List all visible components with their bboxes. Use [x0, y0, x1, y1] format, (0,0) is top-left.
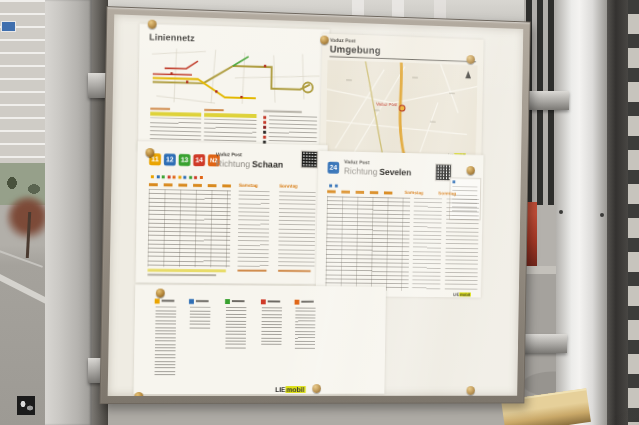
- sevelen-timetable-panel: 24 Vaduz Post RichtungSevelen Samstag So…: [316, 151, 484, 298]
- logo-lie: LIE: [275, 386, 286, 393]
- info-card-chip: [453, 180, 456, 183]
- day-header-sonntag: Sonntag: [279, 183, 297, 188]
- brass-fastener: [466, 386, 474, 395]
- bus-stop-info-board-photo: Liniennetz: [0, 0, 639, 425]
- qr-code: [301, 150, 318, 168]
- area-map: Vaduz Post: [326, 60, 478, 157]
- richtung-label: Richtung: [216, 159, 251, 170]
- building-far-right: [628, 0, 639, 425]
- brass-fastener: [466, 55, 474, 64]
- brass-fastener: [466, 166, 474, 175]
- timetable-grid-sonntag: [445, 199, 479, 292]
- line-square-11: [155, 299, 160, 304]
- schaan-timetable-panel: 11121314N2 Vaduz Post RichtungSchaan Sam…: [136, 141, 328, 284]
- richtung-label: Richtung: [344, 166, 378, 177]
- line-square-13: [225, 299, 230, 304]
- notice-board: Liniennetz: [108, 14, 524, 396]
- route-badge-24: 24: [328, 162, 340, 174]
- column-title-bar: [232, 300, 245, 302]
- liniennetz-panel: Liniennetz: [138, 24, 330, 155]
- brass-fastener: [320, 35, 329, 44]
- legend-icon: [263, 131, 266, 134]
- stop-list-column-13: [224, 299, 248, 350]
- line-chip: [167, 176, 170, 179]
- table-caption-bar: [150, 108, 170, 110]
- stop-names: [225, 307, 246, 351]
- line-chip: [199, 176, 202, 179]
- line-chip: [334, 184, 337, 187]
- blue-sign: [1, 21, 16, 32]
- map-marker-label: Vaduz Post: [376, 102, 398, 108]
- line-chip: [173, 176, 176, 179]
- line-chip: [183, 176, 186, 179]
- stop-names: [155, 307, 177, 377]
- timetable-header-yellow: [150, 112, 201, 117]
- brass-fastener: [148, 20, 157, 29]
- logo-mobil: mobil: [285, 386, 305, 393]
- mounting-post-left: [45, 0, 92, 425]
- day-header-samstag: Samstag: [405, 190, 424, 195]
- line-chip: [194, 176, 197, 179]
- shelter-frame-seal: [607, 0, 629, 425]
- line-chip: [162, 175, 165, 178]
- timetable-grid-samstag: [238, 191, 270, 268]
- timetable-header-yellow: [204, 113, 256, 118]
- display-case: Liniennetz: [100, 6, 531, 404]
- schaan-direction: RichtungSchaan: [216, 159, 283, 170]
- route-badge-14: 14: [193, 154, 205, 166]
- stop-list-column-11: [154, 299, 179, 377]
- column-title-bar: [162, 300, 175, 302]
- stop-list-column-14: [260, 299, 284, 346]
- day-header-sonntag: Sonntag: [438, 191, 456, 196]
- legend-icon: [263, 121, 266, 124]
- line-square-12: [189, 299, 194, 304]
- timetable-grid-samstag: [412, 198, 442, 292]
- table-caption-bar: [204, 109, 223, 111]
- liniennetz-title: Liniennetz: [149, 32, 195, 43]
- post-bolt: [559, 210, 563, 214]
- network-map: [146, 46, 321, 108]
- destination-schaan: Schaan: [252, 159, 283, 169]
- stop-names: [261, 307, 282, 346]
- line-chip: [151, 175, 154, 178]
- stop-list-panel: LIEmobil: [134, 285, 386, 395]
- line-chip: [156, 175, 159, 178]
- route-badge-13: 13: [179, 154, 191, 166]
- route-badges-row: 11121314N2: [149, 153, 223, 172]
- logo-mobil: mobil: [459, 292, 471, 296]
- footnote-line: [148, 274, 217, 276]
- line-chip: [329, 184, 332, 187]
- line-square-n2: [295, 300, 300, 305]
- timetable-grid-weekday: [148, 189, 231, 267]
- sevelen-kicker: Vaduz Post: [344, 159, 370, 165]
- line-chip: [189, 176, 192, 179]
- footnote-highlight: [148, 269, 226, 273]
- photographer-watermark: [17, 396, 35, 415]
- stop-names: [190, 307, 211, 329]
- post-bolt: [600, 213, 604, 217]
- umgebung-title: Umgebung: [330, 43, 381, 56]
- schaan-kicker: Vaduz Post: [216, 152, 242, 157]
- liemobil-logo-mini: LIEmobil: [453, 288, 471, 299]
- destination-sevelen: Sevelen: [379, 167, 411, 178]
- line-chip: [178, 176, 181, 179]
- column-title-bar: [268, 300, 281, 302]
- brass-fastener: [156, 289, 165, 298]
- line-square-14: [261, 299, 266, 304]
- column-title-bar: [196, 300, 209, 302]
- legend-icon: [263, 126, 266, 129]
- stop-names: [295, 307, 316, 350]
- column-title-bar: [301, 301, 313, 303]
- timetable-grid-weekday: [325, 196, 410, 291]
- legend-icon: [263, 116, 266, 119]
- stop-list-column-12: [189, 299, 213, 331]
- liemobil-logo: LIEmobil: [275, 378, 306, 396]
- footnote-orange: [278, 270, 311, 272]
- sevelen-direction: RichtungSevelen: [344, 166, 412, 177]
- brass-fastener: [134, 392, 143, 396]
- footnote-orange: [238, 270, 267, 272]
- timetable-grid-sonntag: [278, 191, 315, 268]
- legend-icon: [263, 136, 266, 139]
- stop-list-column-n2: [294, 300, 318, 351]
- route-badge-12: 12: [164, 154, 176, 166]
- brass-fastener: [145, 148, 154, 157]
- umgebung-panel: Vaduz Post Umgebung Vaduz Post: [320, 33, 484, 161]
- legend-title-bar: [263, 110, 301, 113]
- day-header-samstag: Samstag: [239, 183, 258, 188]
